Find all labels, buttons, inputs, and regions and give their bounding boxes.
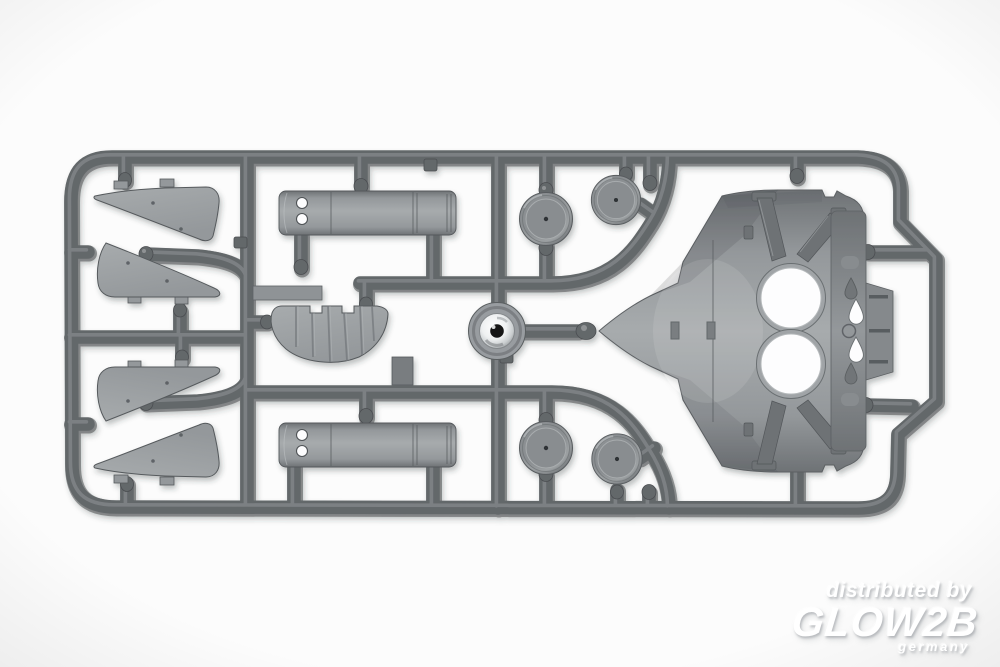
engine-opening-2	[761, 334, 821, 394]
watermark: distributed by GLOW2B germany	[792, 579, 978, 654]
flat-spar-plate	[253, 286, 322, 300]
product-photo-model-kit-sprue: distributed by GLOW2B germany	[0, 0, 1000, 667]
square-gate-tab	[392, 357, 413, 385]
wheel-half-1	[520, 193, 573, 246]
wheel-half-2	[591, 175, 640, 224]
wheel-half-3	[520, 422, 573, 475]
sprue	[69, 155, 937, 510]
sprue-illustration	[0, 0, 1000, 667]
nacelle-half-top	[279, 191, 456, 235]
engine-opening-1	[761, 268, 821, 328]
watermark-brand-logo: GLOW2B	[790, 603, 980, 642]
runner-tab	[234, 237, 247, 248]
nacelle-half-bottom	[279, 423, 456, 467]
wheel-half-4	[592, 434, 642, 484]
runner-tab	[424, 159, 437, 171]
engine-cowl-ring	[469, 303, 526, 360]
